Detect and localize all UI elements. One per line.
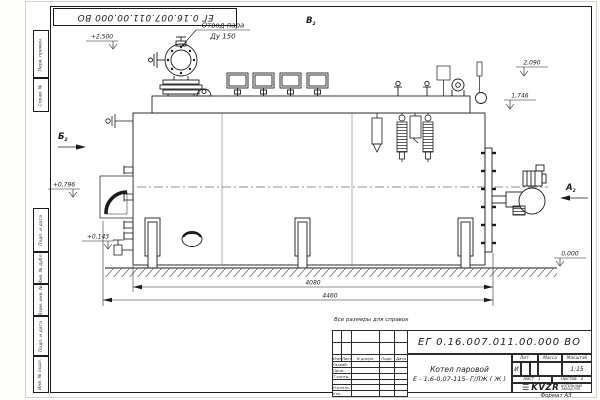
view-marker-v: В2: [306, 16, 316, 27]
burner-motor: [523, 171, 542, 186]
elevation-0000: 0,000: [561, 251, 578, 258]
dimension-4080: 4080: [305, 280, 320, 287]
ground-hatch: [105, 268, 557, 277]
scale-value-cell: 1:15: [562, 362, 592, 376]
safety-valve-boxes: [227, 73, 328, 96]
mass-label: Масса: [538, 354, 562, 362]
row-approved: Утв.: [333, 391, 352, 397]
elevation-0143: +0,143: [87, 234, 109, 241]
company-cell: ☰ KVZR КОТЕЛЬНЫЙ ЗАВОД РЭП: [512, 383, 592, 393]
elevation-2500: +2,500: [91, 34, 113, 41]
product-name-cell: Котел паровой Е - 1,6-0,07-115- Г/ЛЖ ( Ж…: [407, 354, 512, 393]
product-name-line1: Котел паровой: [430, 365, 489, 374]
lit-cell-2: [521, 362, 530, 376]
lifting-eye: [452, 79, 464, 91]
sheet-label: Лист: [523, 377, 534, 382]
sheet-cell: Лист 1: [512, 376, 552, 383]
title-block-doc-number: ЕГ 0.16.007.011.00.000 ВО: [407, 330, 592, 354]
steam-outlet-label-line2: Ду 150: [209, 33, 236, 41]
lit-value-cell: И: [512, 362, 521, 376]
sheet-value: 1: [538, 377, 541, 382]
logo-bars-icon: ☰: [522, 384, 529, 392]
front-door-detail: [100, 176, 133, 218]
gauge-shutoff-valves: [394, 81, 431, 96]
col-date: Дата: [395, 355, 408, 362]
col-list: Лист: [342, 355, 352, 362]
product-name-line2: Е - 1,6-0,07-115- Г/ЛЖ ( Ж ): [413, 375, 506, 383]
company-name-line2: ЗАВОД РЭП: [561, 388, 582, 391]
sheets-cell: Листов 2: [552, 376, 592, 383]
burner-assembly: [492, 165, 546, 215]
format-note: Формат А3: [520, 393, 592, 399]
view-marker-b: Б2: [58, 132, 68, 143]
reference-note: Все размеры для справок: [334, 317, 409, 323]
col-izm: Изм.: [333, 355, 342, 362]
elevation-2090: 2,090: [523, 60, 540, 67]
company-logo: ☰ KVZR КОТЕЛЬНЫЙ ЗАВОД РЭП: [522, 383, 582, 393]
drawing-sheet: Перв. примен. Справ. № Подп. и дата Инв.…: [0, 0, 600, 400]
col-sign: Подп.: [380, 355, 395, 362]
mass-value-cell: [538, 362, 562, 376]
title-block: Изм. Лист N докум. Подп. Дата Разраб. Пр…: [332, 330, 592, 393]
scale-label: Масштаб: [562, 354, 592, 362]
lit-cell-3: [530, 362, 538, 376]
logo-text: KVZR: [531, 383, 559, 393]
manhole: [182, 232, 202, 247]
elevation-1746: 1,746: [511, 93, 528, 100]
lit-label: Лит.: [512, 354, 538, 362]
row-tcontrol: Т.контр.: [333, 374, 352, 380]
sheets-label: Листов: [561, 377, 577, 382]
steam-outlet-label-line1: Отвод пара: [202, 22, 245, 30]
steam-outlet-valve: [149, 37, 203, 96]
view-marker-a: А2: [565, 183, 576, 194]
vent-loop: [476, 93, 487, 104]
col-doc: N докум.: [352, 355, 380, 362]
elevation-0796: +0,796: [53, 182, 75, 189]
row-ncontrol: Н.контр.: [333, 385, 352, 391]
sheets-value: 2: [581, 377, 584, 382]
title-block-left-grid: Изм. Лист N докум. Подп. Дата Разраб. Пр…: [332, 330, 408, 397]
dimension-4460: 4460: [322, 293, 337, 300]
